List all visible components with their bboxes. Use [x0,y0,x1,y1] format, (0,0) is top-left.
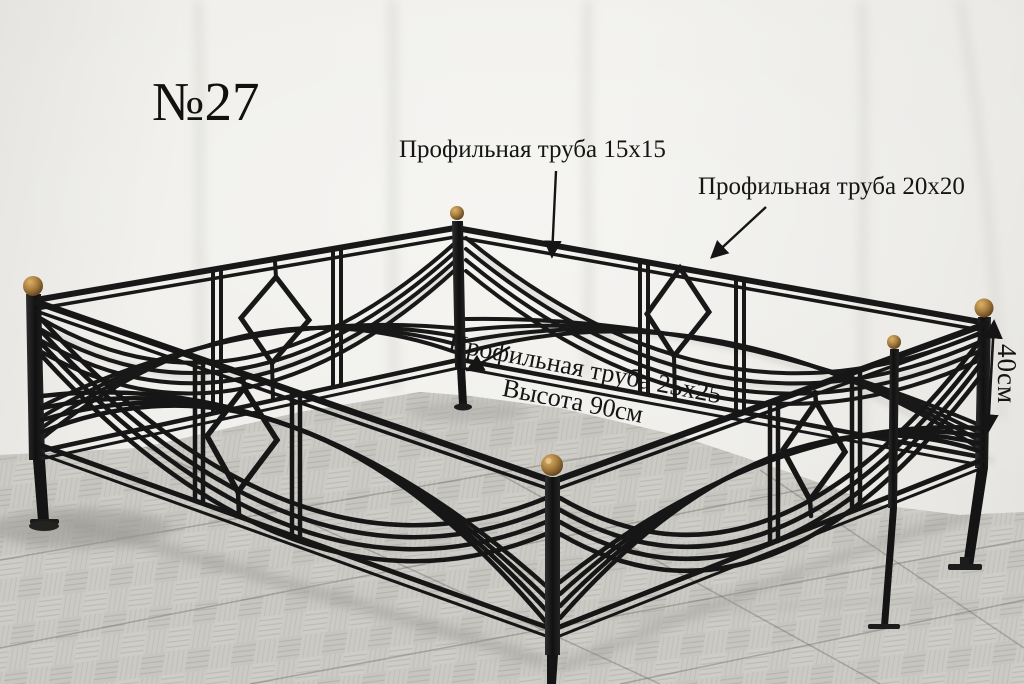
brass-ball-finial [887,335,901,349]
brass-ball-finial [23,276,43,296]
product-number-label: №27 [152,70,259,133]
brass-ball-finial [975,299,994,318]
product-photo: №27 Профильная труба 15х15 Профильная тр… [0,0,1024,684]
tube20-callout-label: Профильная труба 20х20 [698,173,965,201]
brass-ball-finial [450,206,464,220]
brass-ball-finial [541,454,563,476]
tube20-arrow [712,207,766,257]
section-height-label: 40см [991,344,1022,404]
tube15-callout-label: Профильная труба 15х15 [399,136,666,164]
